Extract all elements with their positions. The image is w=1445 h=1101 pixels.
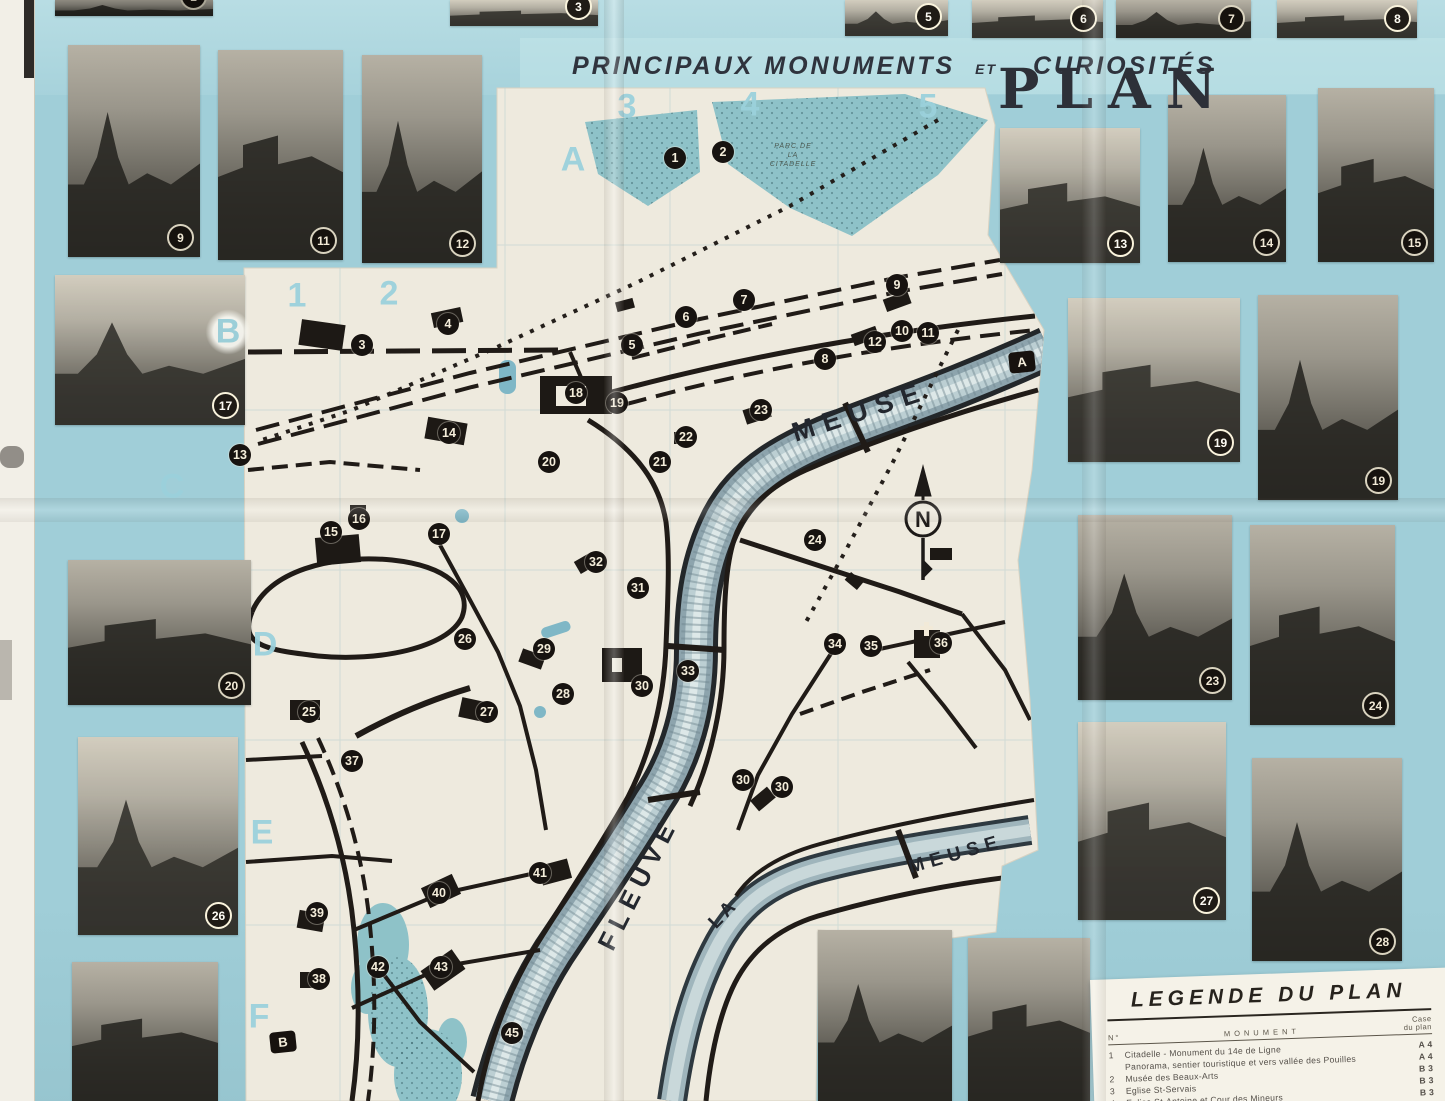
plan-title: PLAN: [998, 56, 1231, 121]
map-badge-4: 4: [437, 313, 459, 335]
park-label: PARC DE LA CITADELLE: [756, 142, 830, 169]
map-badge-18: 18: [565, 382, 587, 404]
map-badge-30: 30: [771, 776, 793, 798]
grid-label-C: C: [160, 468, 185, 507]
title-et: ET: [975, 61, 997, 77]
legend-col-number: N°: [1108, 1033, 1126, 1043]
photo-badge-15: 15: [1401, 229, 1428, 256]
map-badge-32: 32: [585, 551, 607, 573]
map-badge-36: 36: [930, 632, 952, 654]
photo-badge-5: 5: [915, 3, 942, 30]
photo-badge-14: 14: [1253, 229, 1280, 256]
map-badge-30: 30: [631, 675, 653, 697]
map-badge-26: 26: [454, 628, 476, 650]
map-edge-marker-B: B: [269, 1030, 297, 1054]
photo-badge-19: 19: [1365, 467, 1392, 494]
map-badge-25: 25: [298, 701, 320, 723]
monument-photo: 20: [68, 560, 251, 705]
photo-badge-7: 7: [1218, 5, 1245, 32]
grid-label-A: A: [561, 141, 586, 180]
monument-photo: 11: [218, 50, 343, 260]
monument-photo: 5: [845, 0, 948, 36]
photo-badge-24: 24: [1362, 692, 1389, 719]
photo-badge-19: 19: [1207, 429, 1234, 456]
map-badge-39: 39: [306, 902, 328, 924]
grid-label-5: 5: [919, 88, 938, 127]
map-badge-31: 31: [627, 577, 649, 599]
grid-label-F: F: [249, 998, 270, 1037]
map-badge-8: 8: [814, 348, 836, 370]
grid-label-2: 2: [380, 275, 399, 314]
legend-col-monument: MONUMENT: [1126, 1023, 1398, 1041]
photo-badge-6: 6: [1070, 5, 1097, 32]
map-badge-38: 38: [308, 968, 330, 990]
photo-badge-11: 11: [310, 227, 337, 254]
map-badge-21: 21: [649, 451, 671, 473]
map-badge-19: 19: [606, 392, 628, 414]
grid-label-3: 3: [618, 88, 637, 127]
map-badge-35: 35: [860, 635, 882, 657]
photo-badge-13: 13: [1107, 230, 1134, 257]
map-badge-29: 29: [533, 638, 555, 660]
legend-cell-cs: B 3: [1403, 1062, 1433, 1075]
map-badge-43: 43: [430, 956, 452, 978]
photo-badge-26: 26: [205, 902, 232, 929]
map-badge-42: 42: [367, 956, 389, 978]
map-edge-marker-A: A: [1008, 350, 1036, 374]
monument-photo: 15: [1318, 88, 1434, 262]
monument-photo: 19: [1258, 295, 1398, 500]
photo-badge-8: 8: [1384, 5, 1411, 32]
map-badge-12: 12: [864, 331, 886, 353]
grid-label-4: 4: [741, 86, 760, 125]
map-badge-23: 23: [750, 399, 772, 421]
map-badge-34: 34: [824, 633, 846, 655]
map-badge-10: 10: [891, 320, 913, 342]
map-badge-16: 16: [348, 508, 370, 530]
map-badge-13: 13: [229, 444, 251, 466]
map-badge-30: 30: [732, 769, 754, 791]
map-badge-40: 40: [428, 882, 450, 904]
park-label-line: PARC DE: [756, 142, 830, 151]
legend-cell-no: 2: [1109, 1073, 1125, 1086]
map-badge-5: 5: [621, 334, 643, 356]
legend-cell-no: [1109, 1061, 1125, 1074]
photo-badge-3: 3: [565, 0, 592, 20]
photo-badge-1: 1: [180, 0, 207, 10]
monument-photo: 12: [362, 55, 482, 263]
photo-badge-28: 28: [1369, 928, 1396, 955]
monument-photo: 23: [1078, 515, 1232, 700]
monument-photo: [818, 930, 952, 1101]
park-label-line: LA: [756, 151, 830, 160]
legend-table: 1Citadelle - Monument du 14e de LigneA 4…: [1108, 1038, 1434, 1101]
map-badge-6: 6: [675, 306, 697, 328]
monument-photo: 3: [450, 0, 598, 26]
legend-cell-no: 3: [1110, 1085, 1126, 1098]
map-badge-11: 11: [917, 322, 939, 344]
map-badge-2: 2: [712, 141, 734, 163]
grid-label-B: B: [204, 307, 253, 358]
title-main: PRINCIPAUX MONUMENTS: [572, 52, 955, 80]
monument-photo: 9: [68, 45, 200, 257]
legend-panel: LEGENDE DU PLAN N° MONUMENT Case du plan…: [1090, 968, 1445, 1101]
legend-cell-cs: A 4: [1402, 1038, 1432, 1051]
monument-photo: 13: [1000, 128, 1140, 263]
photo-badge-23: 23: [1199, 667, 1226, 694]
grid-label-D: D: [253, 626, 278, 665]
map-badge-9: 9: [886, 274, 908, 296]
grid-label-E: E: [251, 814, 274, 853]
map-badge-20: 20: [538, 451, 560, 473]
photo-badge-27: 27: [1193, 887, 1220, 914]
map-badge-3: 3: [351, 334, 373, 356]
compass-north-letter: N: [915, 507, 931, 532]
monument-photo: 28: [1252, 758, 1402, 961]
monument-photo: 27: [1078, 722, 1226, 920]
legend-col-case: Case du plan: [1397, 1015, 1432, 1032]
monument-photo: [72, 962, 218, 1101]
map-badge-15: 15: [320, 521, 342, 543]
monument-photo: 26: [78, 737, 238, 935]
map-badge-24: 24: [804, 529, 826, 551]
map-badge-22: 22: [675, 426, 697, 448]
monument-photo: 1: [55, 0, 213, 16]
map-badge-28: 28: [552, 683, 574, 705]
legend-cell-no: 1: [1108, 1049, 1124, 1062]
map-badge-45: 45: [501, 1022, 523, 1044]
map-badge-17: 17: [428, 523, 450, 545]
legend-cell-no: 4: [1110, 1097, 1126, 1101]
map-badge-1: 1: [664, 147, 686, 169]
monument-photo: 8: [1277, 0, 1417, 38]
monument-photo: [968, 938, 1090, 1101]
map-badge-7: 7: [733, 289, 755, 311]
photo-badge-17: 17: [212, 392, 239, 419]
map-badge-14: 14: [438, 422, 460, 444]
map-badge-37: 37: [341, 750, 363, 772]
monument-photo: 6: [972, 0, 1103, 38]
legend-cell-cs: B 3: [1404, 1074, 1434, 1087]
photo-badge-20: 20: [218, 672, 245, 699]
folded-tourist-map-scan: N 13567891112131415171919202324262728 PA…: [0, 0, 1445, 1101]
monument-photo: 7: [1116, 0, 1251, 38]
photo-badge-12: 12: [449, 230, 476, 257]
map-badge-27: 27: [476, 701, 498, 723]
grid-label-1: 1: [288, 277, 307, 316]
monument-photo: 19: [1068, 298, 1240, 462]
photo-badge-9: 9: [167, 224, 194, 251]
legend-cell-cs: A 4: [1403, 1050, 1433, 1063]
legend-cell-cs: B 3: [1404, 1086, 1434, 1099]
map-badge-33: 33: [677, 660, 699, 682]
map-badge-41: 41: [529, 862, 551, 884]
legend-col-case-line2: du plan: [1404, 1022, 1432, 1032]
monument-photo: 24: [1250, 525, 1395, 725]
park-label-line: CITADELLE: [756, 160, 830, 169]
